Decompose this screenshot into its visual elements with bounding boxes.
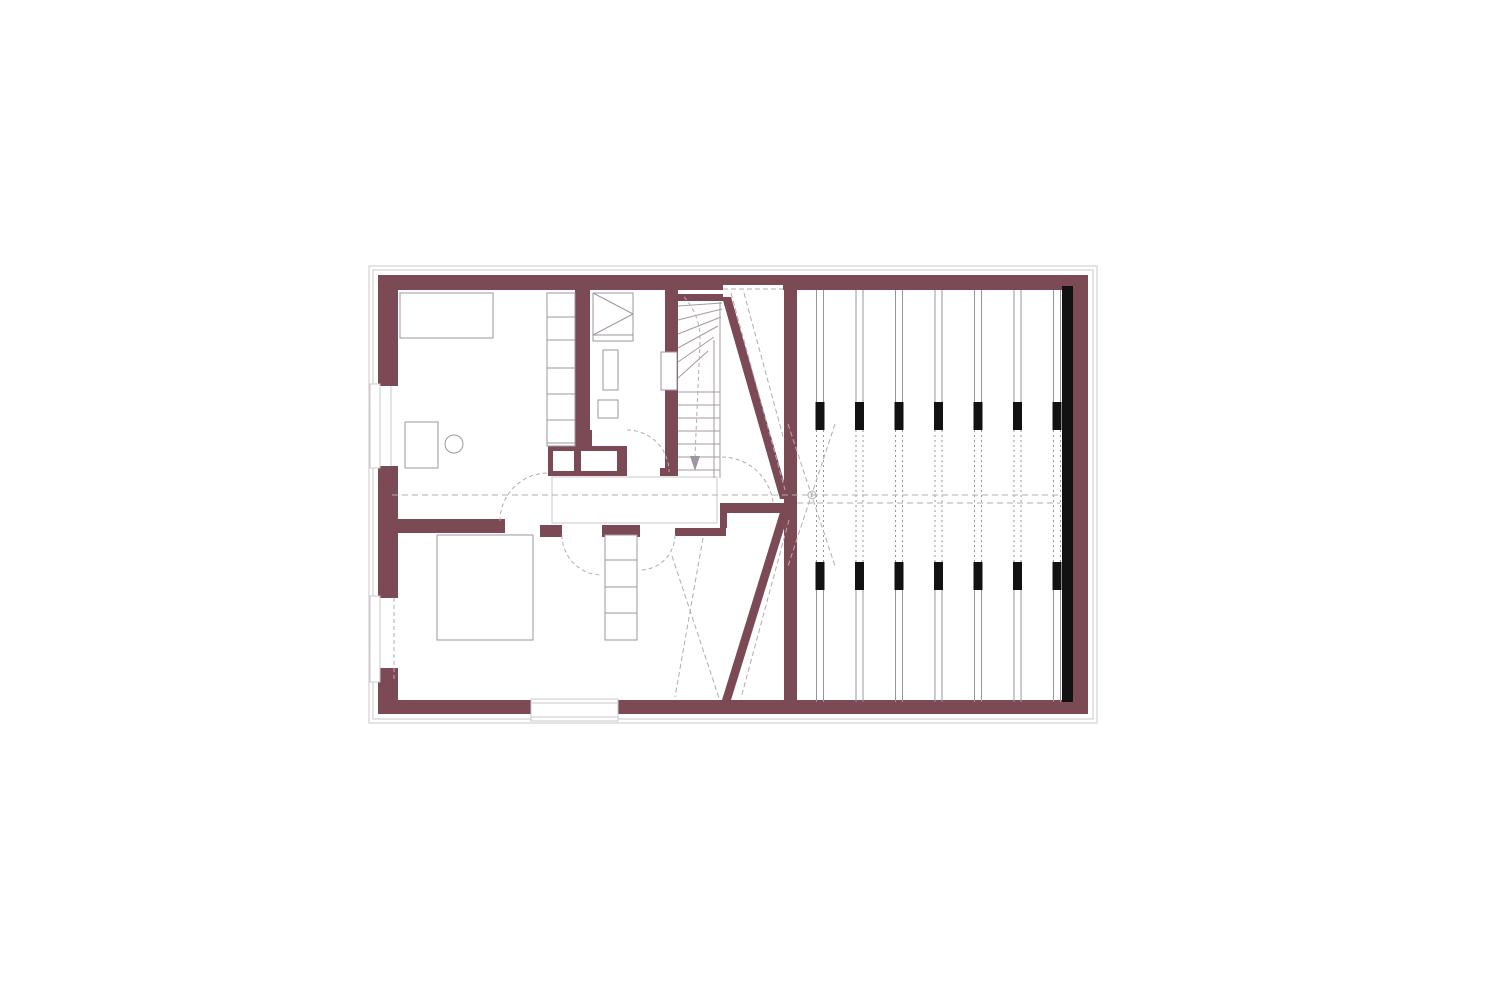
joist-bearing-block [974,562,983,590]
wardrobe-room2 [593,293,633,335]
desk-room1 [405,422,438,468]
chimney-flue-2 [581,451,617,471]
bottom-door-frame [531,699,618,721]
wall-niche-room2 [661,352,677,390]
joist-bearing-block [855,402,864,430]
stair-winder [678,337,714,362]
roofline-dash [741,520,789,698]
diagonal-wall-upper [722,297,789,499]
fixture-room2-b [598,400,618,418]
headroom-dash-room3 [675,538,703,697]
hall-wall-c [675,528,726,536]
joist-bearing-block [816,402,825,430]
landing-slab [552,477,717,523]
bottom-wall [398,700,1088,714]
joist-bearing-block [1053,562,1062,590]
chimney-flue-1 [553,451,574,471]
joist-bearing-block [895,562,904,590]
hall-wall-a [540,525,562,537]
door-swing-room3-a [562,535,602,575]
door-swing-room1 [500,473,548,521]
left-wall-lower [378,668,398,714]
stair-winder [678,351,708,378]
bed-room3 [437,535,533,640]
hall-wall-step [720,513,727,528]
room-divider-wall [575,290,590,430]
fixture-room2-a [603,350,618,390]
joist-bearing-block [895,402,904,430]
right-wall [1072,275,1088,714]
bed-room1 [400,293,493,338]
room1-bottom-wall [398,519,505,533]
stair-walk-arrow [690,456,700,471]
door-swing-room3-b [640,535,675,570]
shelf-room1 [547,293,575,446]
window-1-frame [370,384,380,468]
stair-winder [678,309,722,320]
left-wall-upper [378,290,398,386]
joist-bearing-block [974,402,983,430]
stair-winder [678,326,718,348]
floor-plan-page [0,0,1500,1000]
joist-bearing-block [816,562,825,590]
insulation-strip [1062,286,1073,702]
door-swing-room2 [627,430,669,472]
joist-bearing-block [934,562,943,590]
stair-walk-line [684,297,700,456]
trapezoid-top-wall [720,503,790,513]
wardrobe-base [593,335,633,341]
window-2-frame [370,596,380,682]
joist-bearing-block [1013,402,1022,430]
joist-bearing-block [855,562,864,590]
diagonal-wall-lower [722,509,790,700]
joist-bearing-block [1053,402,1062,430]
joist-bearing-block [934,402,943,430]
stair-winder [678,303,722,306]
joist-bearing-block [1013,562,1022,590]
floor-plan-canvas [0,0,1500,1000]
chair-room1 [445,435,463,453]
left-wall-middle [378,466,398,598]
